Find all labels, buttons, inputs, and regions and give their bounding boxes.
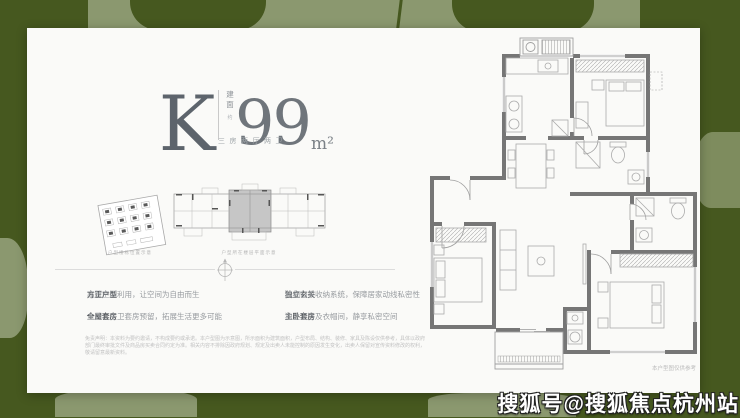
living-furniture bbox=[500, 230, 586, 290]
dining-furniture bbox=[508, 144, 554, 188]
room-layout-text: 三房两厅两卫 bbox=[218, 136, 287, 146]
section-divider-right bbox=[235, 269, 395, 270]
plan-walls bbox=[430, 54, 697, 354]
compass-icon bbox=[216, 258, 234, 281]
kitchen-furniture bbox=[506, 58, 568, 136]
leaf-sage-right bbox=[695, 132, 740, 208]
unit-letter: K bbox=[145, 74, 229, 174]
utility-fixtures bbox=[567, 312, 583, 344]
area-label-char2: 面 bbox=[226, 100, 234, 109]
watermark-text: 搜狐号@搜狐焦点杭州站 bbox=[498, 388, 739, 418]
feature-desc: 高效空间利用，让空间为自由而生 bbox=[87, 290, 200, 299]
area-approx-label: 约 bbox=[225, 116, 235, 122]
bedroom2-furniture bbox=[576, 60, 644, 128]
site-plan-caption: 户型楼栋位置示意 bbox=[95, 250, 165, 256]
headline-divider bbox=[218, 90, 219, 140]
section-divider-left bbox=[55, 269, 215, 270]
bathroom1-fixtures bbox=[576, 142, 644, 184]
floorplate-drawing bbox=[172, 180, 327, 248]
area-label: 建面 bbox=[225, 90, 235, 109]
floor-plan-drawing: 本户型图仅供参考 bbox=[430, 32, 697, 374]
leaf-sage-bottom-left bbox=[55, 390, 197, 417]
area-label-char1: 建 bbox=[226, 90, 234, 99]
floor-plan-card: K 建面 约 99 m² 三房两厅两卫 bbox=[27, 28, 700, 393]
leaf-dark-top-left bbox=[130, 0, 266, 30]
feature-desc: 精细归家收纳系统，保障居家动线私密性 bbox=[285, 290, 420, 299]
bathroom2-fixtures bbox=[636, 198, 686, 242]
floorplate-caption: 户型所在楼层平面示意 bbox=[203, 250, 295, 256]
plan-note: 本户型图仅供参考 bbox=[652, 364, 697, 372]
feature-desc: 主卧、主卫套房预留，拓展生活更多可能 bbox=[87, 312, 222, 321]
bedroom3-furniture bbox=[434, 228, 486, 314]
leaf-sage-left bbox=[0, 238, 28, 338]
feature-desc: 独立卫浴及衣帽间，静享私密空间 bbox=[285, 312, 398, 321]
area-unit: m² bbox=[311, 134, 334, 154]
plan-balconies bbox=[495, 38, 662, 369]
disclaimer-text: 免责声明：本资料为要约邀请，不构成要约或承诺。本户型图为示意图，所示面积为建筑面… bbox=[85, 336, 425, 357]
area-value: 99 bbox=[235, 80, 315, 166]
master-bedroom-furniture bbox=[598, 254, 693, 328]
